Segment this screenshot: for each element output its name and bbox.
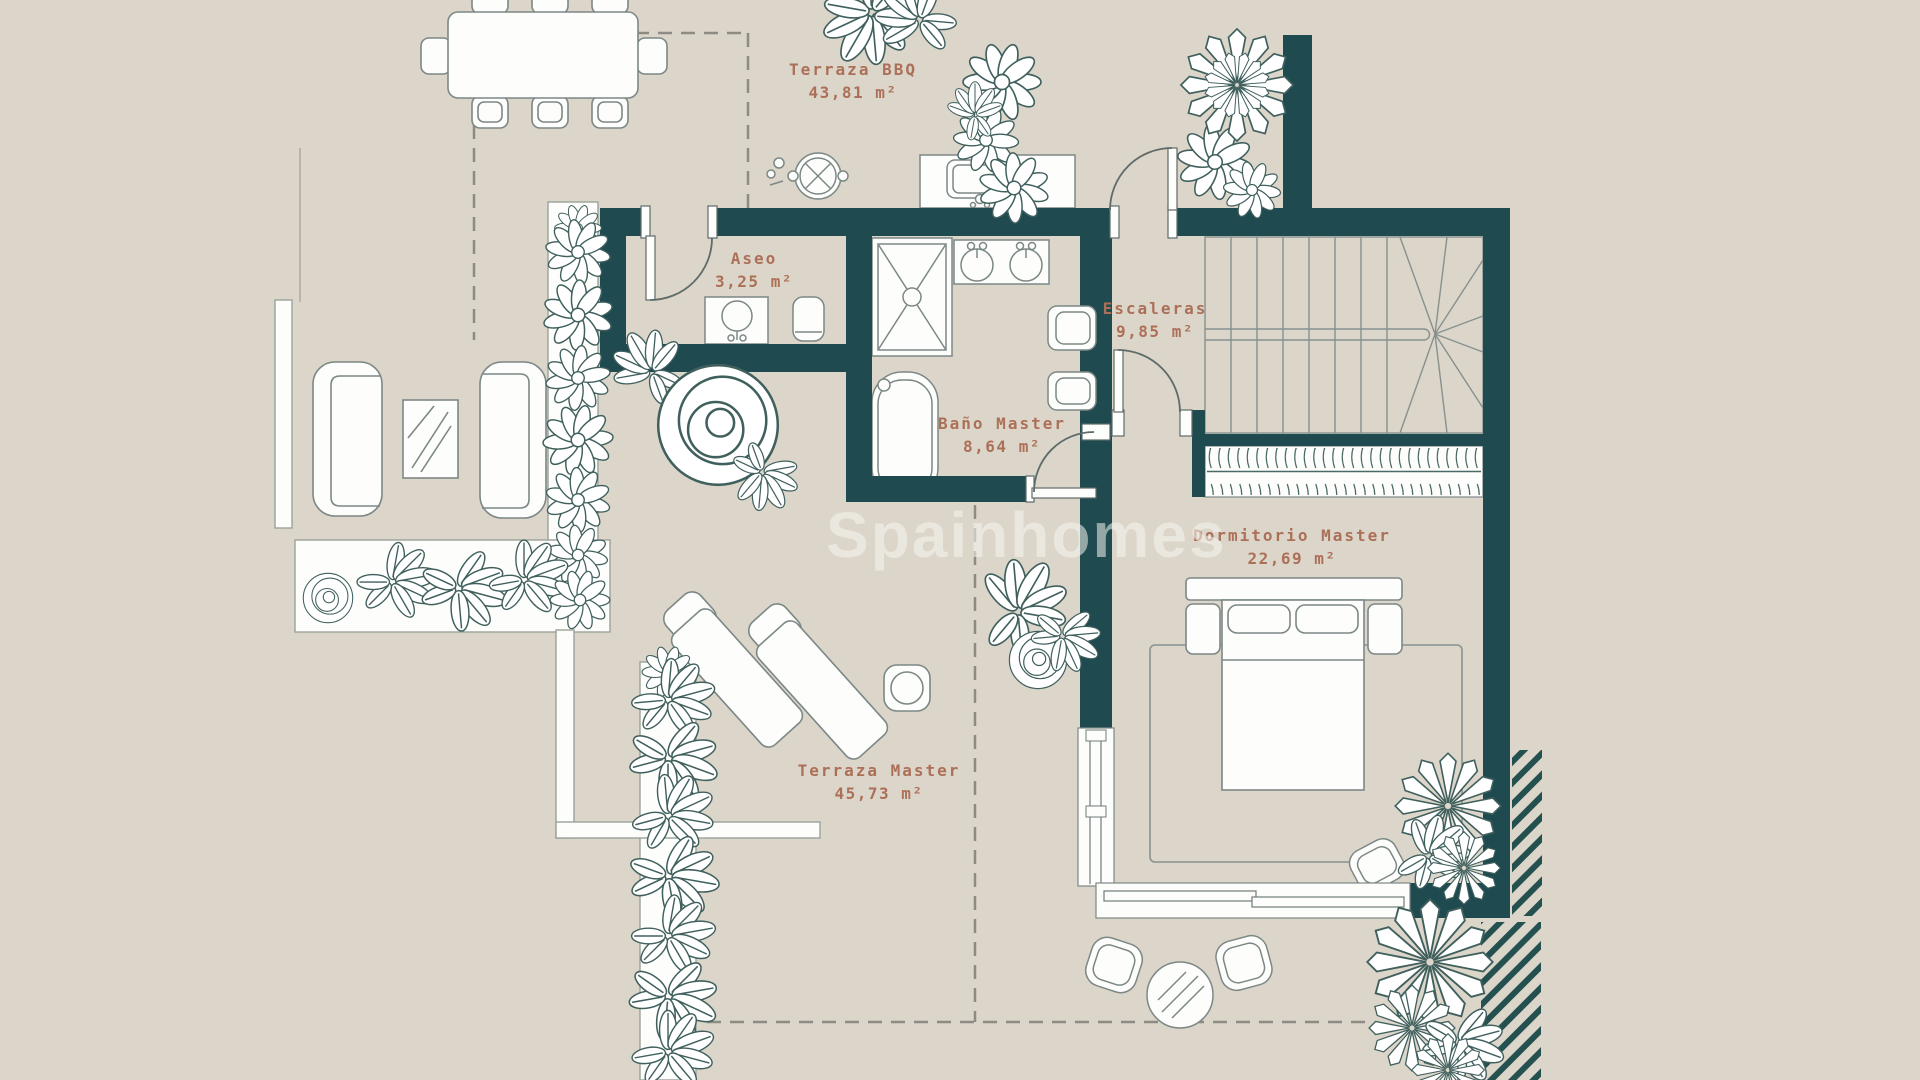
room-name: Aseo [715, 247, 793, 270]
dining-table [448, 12, 638, 98]
pillow [1228, 605, 1290, 633]
floor-plan: Terraza BBQ 43,81 m² Aseo 3,25 m² Escale… [0, 0, 1920, 1080]
room-label-escaleras: Escaleras 9,85 m² [1103, 297, 1208, 343]
wardrobe [1205, 446, 1483, 497]
room-area: 22,69 m² [1193, 547, 1391, 570]
room-area: 45,73 m² [798, 782, 961, 805]
room-name: Terraza Master [798, 759, 961, 782]
room-area: 8,64 m² [938, 435, 1066, 458]
nightstand-right [1368, 604, 1402, 654]
entry-door-leaf [1168, 148, 1177, 210]
lounge-sofas [313, 362, 546, 518]
toilet [793, 297, 824, 341]
room-area: 43,81 m² [789, 81, 917, 104]
room-label-terraza-master: Terraza Master 45,73 m² [798, 759, 961, 805]
bath-door-leaf [1032, 488, 1096, 498]
patio-set [1082, 932, 1276, 1028]
room-label-aseo: Aseo 3,25 m² [715, 247, 793, 293]
room-name: Dormitorio Master [1193, 524, 1391, 547]
dining-set [421, 0, 667, 128]
room-area: 3,25 m² [715, 270, 793, 293]
sun-loungers [659, 587, 930, 763]
bbq-grill [767, 153, 848, 199]
room-name: Escaleras [1103, 297, 1208, 320]
staircase [1205, 237, 1483, 433]
room-name: Baño Master [938, 412, 1066, 435]
room-label-bano-master: Baño Master 8,64 m² [938, 412, 1066, 458]
floor-plan-drawing [0, 0, 1920, 1080]
nightstand-left [1186, 604, 1220, 654]
room-label-dormitorio-master: Dormitorio Master 22,69 m² [1193, 524, 1391, 570]
room-label-terraza-bbq: Terraza BBQ 43,81 m² [789, 58, 917, 104]
room-area: 9,85 m² [1103, 320, 1208, 343]
bano-fixtures [872, 238, 1049, 498]
aseo-fixtures [705, 297, 824, 344]
room-name: Terraza BBQ [789, 58, 917, 81]
pillow [1296, 605, 1358, 633]
bedroom-door-leaf [1114, 350, 1123, 412]
aseo-door-leaf [646, 236, 655, 300]
